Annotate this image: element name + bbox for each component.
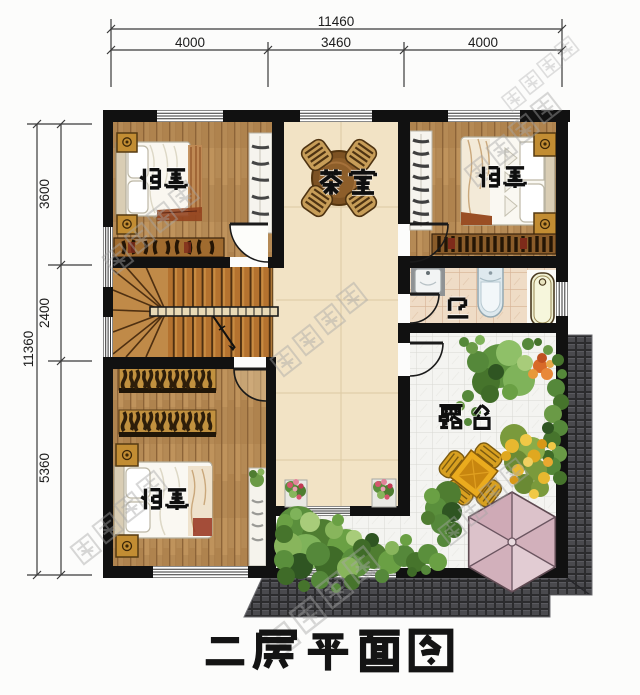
svg-text:11460: 11460 [318,14,355,29]
svg-text:5360: 5360 [37,453,52,483]
svg-text:4000: 4000 [468,35,498,50]
svg-text:11360: 11360 [21,331,36,368]
svg-text:2400: 2400 [37,298,52,328]
svg-text:3460: 3460 [321,35,351,50]
svg-text:3600: 3600 [37,179,52,209]
svg-text:4000: 4000 [175,35,205,50]
